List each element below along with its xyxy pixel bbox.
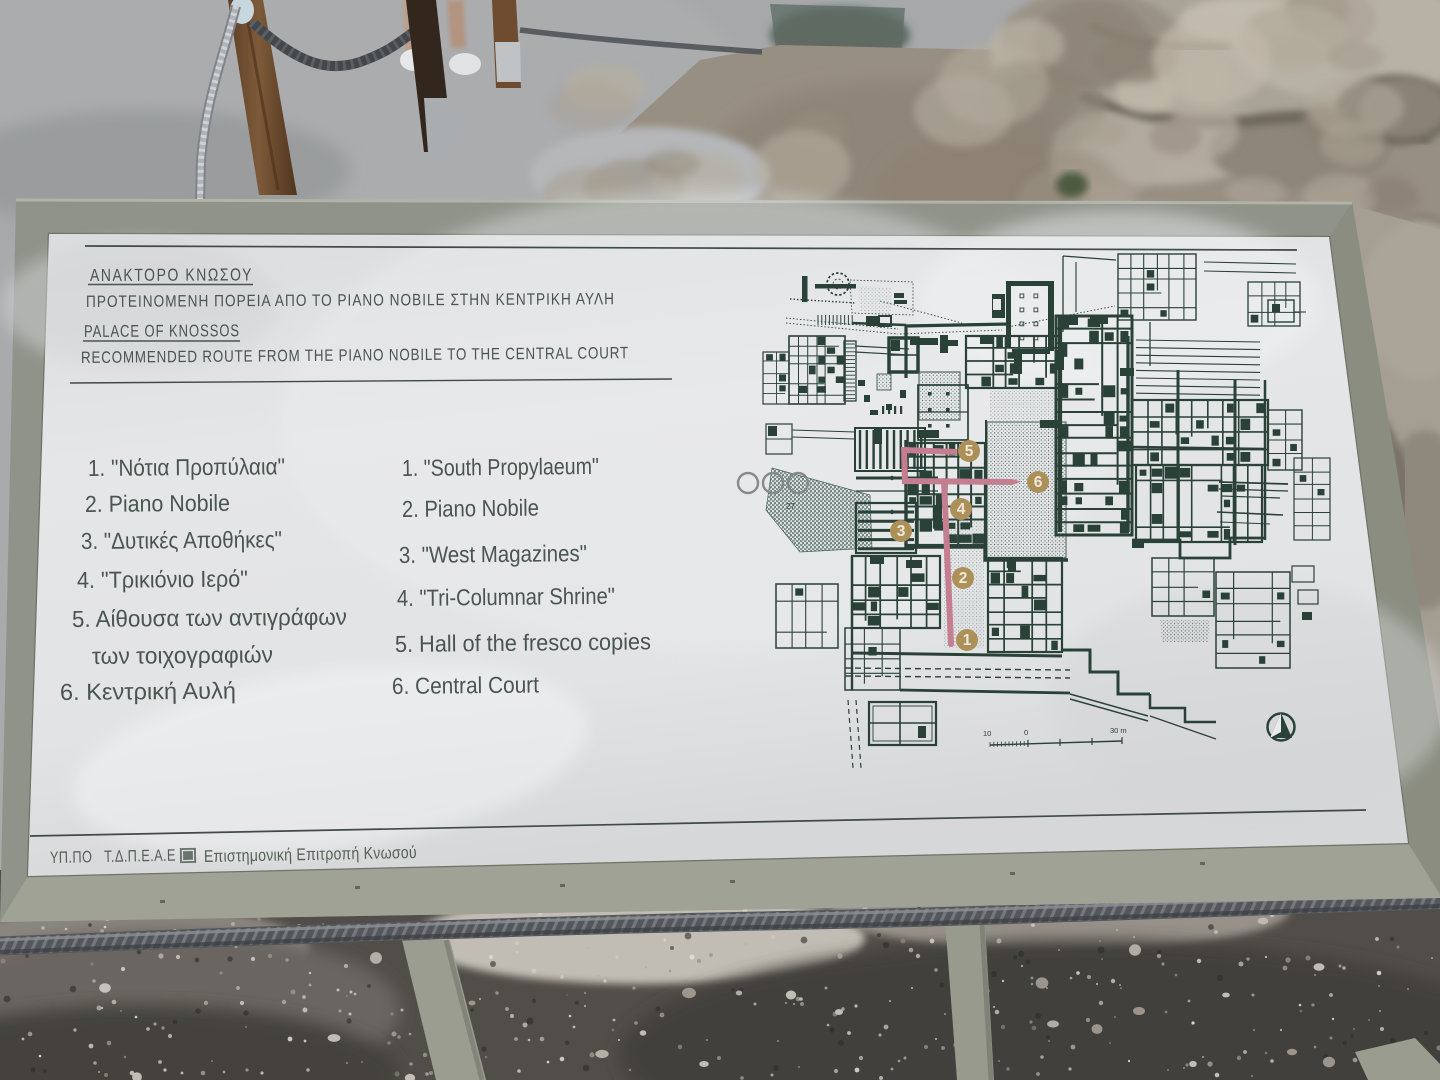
svg-text:ΥΠ.ΠΟ Τ.Δ.Π.Ε.Α.Ε: ΥΠ.ΠΟ Τ.Δ.Π.Ε.Α.Ε: [50, 847, 176, 867]
svg-text:30 m: 30 m: [1110, 726, 1127, 735]
svg-text:ΠΡΟΤΕΙΝΟΜΕΝΗ ΠΟΡΕΙΑ ΑΠΟ ΤΟ PIA: ΠΡΟΤΕΙΝΟΜΕΝΗ ΠΟΡΕΙΑ ΑΠΟ ΤΟ PIANO NOBILE …: [86, 290, 615, 311]
svg-text:των τοιχογραφιών: των τοιχογραφιών: [92, 641, 273, 669]
svg-text:5: 5: [965, 443, 974, 460]
svg-text:4: 4: [957, 501, 966, 518]
svg-text:27: 27: [786, 502, 795, 511]
svg-text:1: 1: [963, 632, 972, 649]
svg-text:4. "Τρικιόνιο Ιερό": 4. "Τρικιόνιο Ιερό": [77, 566, 248, 593]
svg-text:2: 2: [959, 570, 968, 587]
svg-text:6: 6: [1034, 474, 1043, 491]
svg-text:2. Piano Nobile: 2. Piano Nobile: [402, 495, 539, 522]
svg-text:2. Piano Nobile: 2. Piano Nobile: [85, 490, 230, 517]
svg-text:3. "Δυτικές Αποθήκες": 3. "Δυτικές Αποθήκες": [81, 526, 282, 554]
svg-text:10: 10: [983, 729, 991, 738]
svg-text:3: 3: [897, 523, 906, 540]
svg-text:4. "Tri-Columnar Shrine": 4. "Tri-Columnar Shrine": [397, 583, 615, 611]
svg-text:1. "South Propylaeum": 1. "South Propylaeum": [402, 453, 599, 481]
svg-text:1. "Νότια Προπύλαια": 1. "Νότια Προπύλαια": [88, 453, 285, 481]
svg-text:3. "West Magazines": 3. "West Magazines": [399, 540, 587, 568]
svg-text:5. Αίθουσα των αντιγράφων: 5. Αίθουσα των αντιγράφων: [72, 604, 347, 632]
svg-text:6. Central Court: 6. Central Court: [392, 671, 540, 699]
svg-text:6. Κεντρική Αυλή: 6. Κεντρική Αυλή: [60, 677, 236, 705]
svg-text:ΑΝΑΚΤΟΡΟ ΚΝΩΣΟΥ: ΑΝΑΚΤΟΡΟ ΚΝΩΣΟΥ: [90, 264, 253, 285]
svg-text:0: 0: [1024, 728, 1028, 737]
svg-text:5. Hall of the fresco copies: 5. Hall of the fresco copies: [395, 628, 651, 657]
svg-text:PALACE OF KNOSSOS: PALACE OF KNOSSOS: [84, 321, 240, 341]
